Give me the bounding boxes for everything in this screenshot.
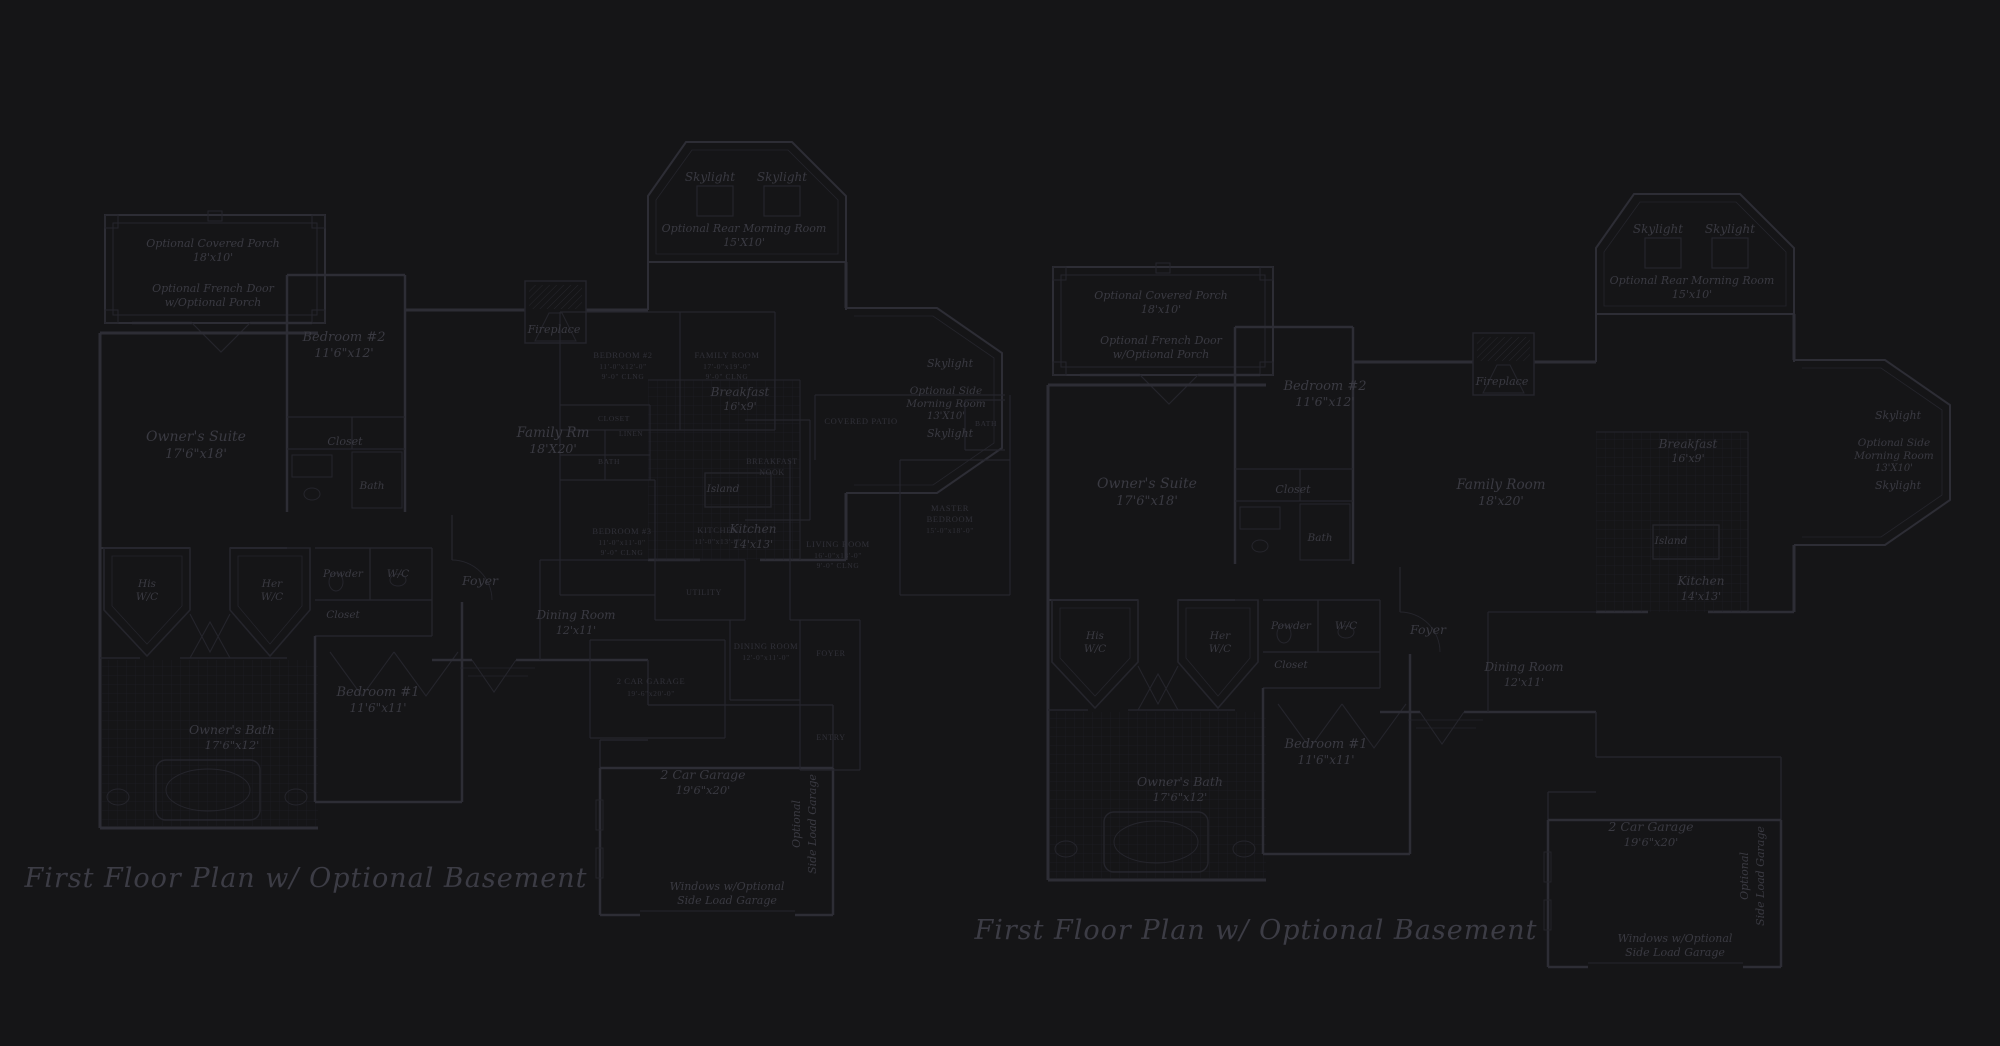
room-label: LIVING ROOM [806, 539, 870, 549]
room-label: Closet [327, 435, 363, 448]
room-label: 15'x10' [1672, 288, 1712, 301]
room-label: 13'X10' [1875, 463, 1913, 474]
room-label: Morning Room [905, 398, 986, 410]
room-label: Her [261, 578, 283, 590]
room-label: Owner's Bath [1137, 774, 1223, 789]
plan-title-right: First Floor Plan w/ Optional Basement [973, 915, 1537, 946]
room-label: Optional [1738, 852, 1751, 900]
room-label: Kitchen [1677, 574, 1725, 588]
room-label: Foyer [461, 573, 499, 588]
room-label: 9'-0" CLNG [601, 548, 644, 557]
room-label: 11'-0"x11'-0" [598, 538, 645, 547]
room-label: 9'-0" CLNG [706, 372, 749, 381]
room-label: Skylight [1875, 409, 1922, 422]
room-label: KITCHEN [697, 525, 739, 535]
room-label: 19'-6"x20'-0" [627, 689, 675, 698]
room-label: FOYER [816, 649, 845, 658]
room-label: Optional French Door [1100, 334, 1223, 347]
room-label: Dining Room [1483, 660, 1563, 674]
room-label: W/C [136, 591, 158, 603]
room-label: W/C [1209, 643, 1231, 655]
room-label: Powder [1270, 620, 1312, 632]
room-label: Skylight [1875, 479, 1922, 492]
room-label: W/C [1084, 643, 1106, 655]
floor-plan-drawing: Optional Covered Porch18'x10'Optional Fr… [0, 0, 2000, 1046]
room-label: w/Optional Porch [165, 296, 261, 309]
room-label: COVERED PATIO [824, 416, 897, 426]
room-label: 11'6"x11' [1297, 753, 1354, 767]
room-label: Closet [326, 609, 360, 621]
room-label: Side Load Garage [806, 774, 819, 874]
room-label: Optional Side [1858, 437, 1930, 449]
room-label: Island [1654, 535, 1688, 547]
room-label: Owner's Bath [189, 722, 275, 737]
room-label: Fireplace [1475, 375, 1529, 388]
room-label: Optional Covered Porch [146, 237, 279, 250]
room-label: Optional Rear Morning Room [1610, 274, 1775, 287]
room-label: Windows w/Optional [1618, 932, 1733, 945]
room-label: Optional French Door [152, 282, 275, 295]
room-label: Skylight [927, 357, 974, 370]
room-label: Owner's Suite [1097, 476, 1197, 492]
room-label: 11'-0"x13'-0" [694, 537, 742, 546]
room-label: 13'X10' [927, 411, 965, 422]
room-label: 19'6"x20' [676, 783, 731, 797]
room-label: Morning Room [1853, 450, 1934, 462]
room-label: Bath [1307, 532, 1333, 544]
room-label: 12'x11' [556, 624, 596, 637]
room-label: Breakfast [710, 385, 770, 399]
room-label: 19'6"x20' [1624, 835, 1679, 849]
room-label: 15'-0"x18'-0" [926, 526, 974, 535]
room-label: Bedroom #1 [1283, 737, 1367, 752]
floor-plan-sheet: Optional Covered Porch18'x10'Optional Fr… [0, 0, 2000, 1046]
room-label: Optional Rear Morning Room [662, 222, 827, 235]
room-label: 12'x11' [1504, 676, 1544, 689]
room-label: 16'x9' [1671, 452, 1704, 465]
room-label: Side Load Garage [1625, 946, 1725, 959]
room-label: Closet [1275, 483, 1311, 496]
room-label: Bath [359, 480, 385, 492]
room-label: 11'-0"x12'-0" [599, 362, 647, 371]
room-label: UTILITY [686, 588, 722, 597]
room-label: Owner's Suite [146, 429, 246, 445]
room-label: 16'-0"x18'-0" [814, 551, 862, 560]
room-label: Skylight [1705, 222, 1755, 236]
room-label: Windows w/Optional [670, 880, 785, 893]
room-label: 18'x10' [193, 251, 233, 264]
room-label: 17'6"x12' [205, 738, 260, 752]
right-plan-walls [1048, 194, 1950, 967]
room-label: NOOK [759, 468, 785, 477]
room-label: CLOSET [598, 414, 630, 423]
room-label: 11'6"x12' [314, 345, 373, 360]
room-label: Side Load Garage [677, 894, 777, 907]
room-label: Skylight [685, 170, 735, 184]
room-label: W/C [261, 591, 283, 603]
room-label: BATH [975, 419, 997, 428]
room-label: 9'-0" CLNG [817, 561, 860, 570]
room-label: His [137, 578, 157, 590]
room-label: BREAKFAST [746, 457, 797, 466]
room-label: Skylight [1633, 222, 1683, 236]
room-label: w/Optional Porch [1113, 348, 1209, 361]
room-label: Bedroom #2 [1282, 379, 1366, 394]
room-label: Bedroom #2 [301, 330, 385, 345]
room-label: 15'X10' [723, 236, 765, 249]
room-label: 17'6"x12' [1153, 790, 1208, 804]
room-label: 18'x20' [1478, 493, 1524, 508]
room-label: Her [1209, 630, 1231, 642]
room-label: LINEN [619, 430, 643, 438]
room-label: 11'6"x12' [1295, 394, 1354, 409]
room-label: 17'6"x18' [165, 447, 227, 462]
room-label: BEDROOM #2 [593, 350, 652, 360]
room-label: Powder [322, 568, 364, 580]
plan-title-left: First Floor Plan w/ Optional Basement [23, 863, 587, 894]
room-label: 18'x10' [1141, 303, 1181, 316]
room-label: DINING ROOM [734, 641, 798, 651]
room-label: 2 Car Garage [659, 767, 745, 782]
room-label: Foyer [1409, 622, 1447, 637]
room-label: 12'-0"x11'-0" [742, 653, 790, 662]
room-label: Optional Side [910, 385, 982, 397]
room-label: BEDROOM #3 [592, 526, 651, 536]
room-label: 17'6"x18' [1116, 494, 1178, 509]
room-label: Side Load Garage [1754, 826, 1767, 926]
left-plan-walls [100, 142, 1002, 915]
room-label: W/C [1335, 620, 1357, 632]
room-label: 14'x13' [1681, 590, 1721, 603]
room-label: ENTRY [816, 733, 845, 742]
room-label: 9'-0" CLNG [602, 372, 645, 381]
room-label: Island [706, 483, 740, 495]
room-label: Family Room [1455, 477, 1545, 493]
room-label: BATH [598, 457, 620, 466]
room-label: W/C [387, 568, 409, 580]
room-label: 18'X20' [529, 441, 577, 456]
room-label: Dining Room [535, 608, 615, 622]
room-label: Skylight [757, 170, 807, 184]
room-label: Closet [1274, 659, 1308, 671]
room-label: BEDROOM [927, 514, 974, 524]
room-label: 17'-0"x19'-0" [703, 362, 751, 371]
room-label: His [1085, 630, 1105, 642]
room-label: Fireplace [527, 323, 581, 336]
room-label: 16'x9' [723, 400, 756, 413]
room-label: 11'6"x11' [349, 701, 406, 715]
room-label: Bedroom #1 [335, 685, 419, 700]
room-label: Family Rm [516, 425, 590, 441]
room-label: Skylight [927, 427, 974, 440]
room-label: 2 Car Garage [1607, 819, 1693, 834]
room-label: Breakfast [1658, 437, 1718, 451]
room-label: 2 CAR GARAGE [617, 676, 686, 686]
room-label: MASTER [931, 503, 969, 513]
room-label: Optional [790, 800, 803, 848]
room-label: Optional Covered Porch [1094, 289, 1227, 302]
room-label: FAMILY ROOM [694, 350, 759, 360]
